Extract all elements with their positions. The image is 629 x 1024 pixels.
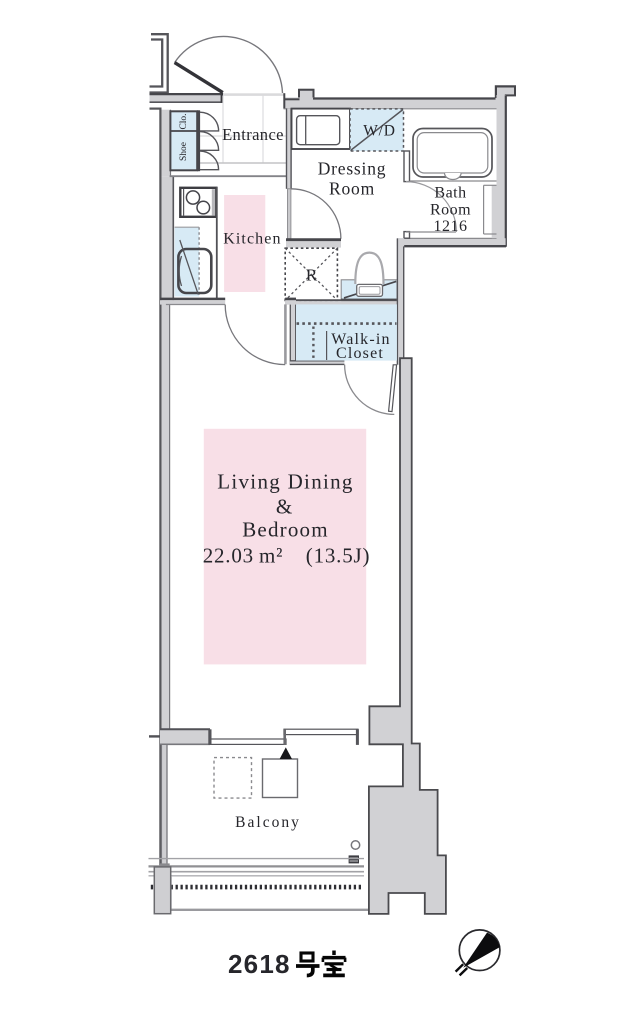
svg-text:Dressing: Dressing bbox=[318, 159, 387, 179]
svg-text:Bedroom: Bedroom bbox=[242, 518, 329, 542]
svg-text:Entrance: Entrance bbox=[222, 125, 284, 144]
svg-text:R: R bbox=[306, 266, 318, 285]
svg-text:&: & bbox=[276, 495, 292, 519]
svg-text:Balcony: Balcony bbox=[235, 814, 301, 831]
svg-text:W/D: W/D bbox=[363, 123, 396, 140]
svg-text:Clo.: Clo. bbox=[179, 113, 189, 129]
svg-text:Room: Room bbox=[430, 202, 471, 219]
svg-text:2618: 2618 bbox=[228, 949, 291, 979]
svg-text:Kitchen: Kitchen bbox=[223, 231, 281, 248]
svg-text:Bath: Bath bbox=[434, 185, 466, 202]
svg-text:1216: 1216 bbox=[434, 218, 468, 235]
svg-text:Closet: Closet bbox=[336, 345, 384, 362]
svg-text:22.03 m² (13.5J): 22.03 m² (13.5J) bbox=[203, 544, 371, 568]
svg-text:Room: Room bbox=[329, 179, 375, 199]
svg-text:Shoe: Shoe bbox=[179, 142, 189, 161]
svg-text:Living Dining: Living Dining bbox=[217, 470, 353, 494]
